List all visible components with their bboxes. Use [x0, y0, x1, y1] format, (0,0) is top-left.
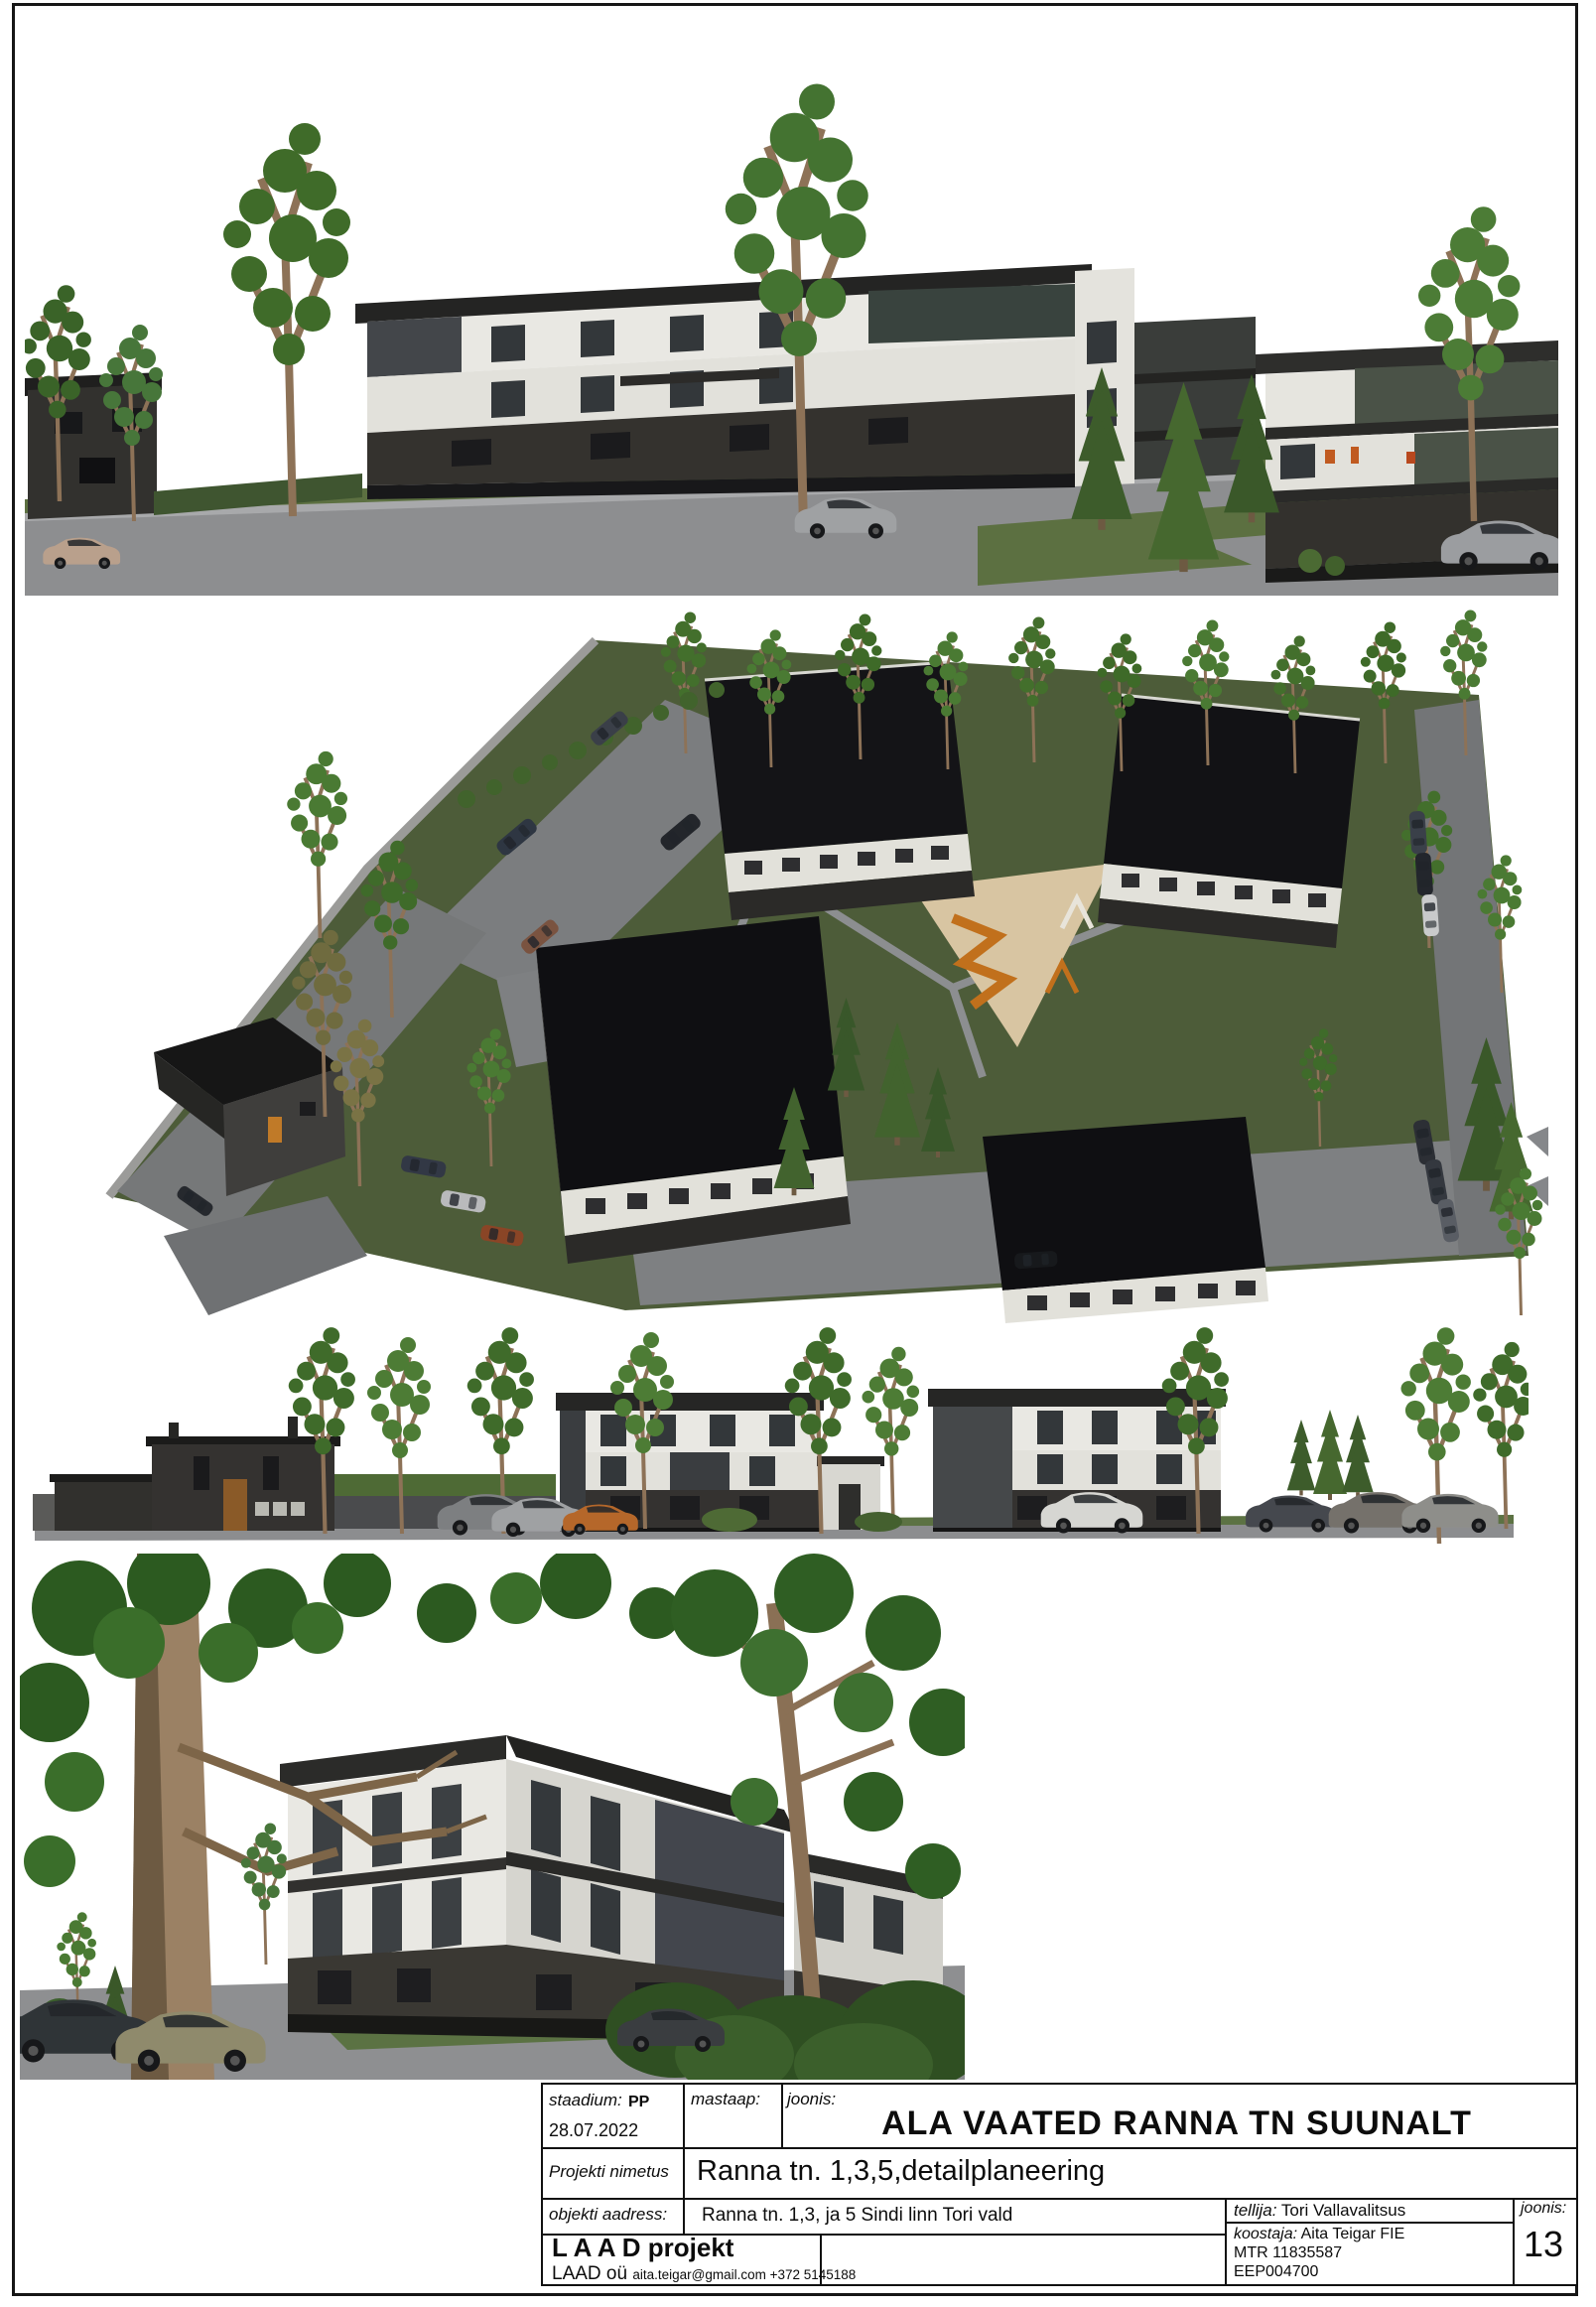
client-line: tellija: Tori Vallavalitsus: [1234, 2201, 1405, 2221]
date-value: 28.07.2022: [549, 2120, 638, 2141]
title-block: staadium: PP 28.07.2022 mastaap: joonis:…: [541, 2083, 1578, 2286]
building-1: [705, 662, 975, 920]
company-name: L A A D projekt: [552, 2233, 733, 2263]
divider: [683, 2085, 685, 2236]
address-value: Ranna tn. 1,3, ja 5 Sindi linn Tori vald: [702, 2205, 1012, 2227]
building-3: [536, 916, 851, 1264]
staadium-label: staadium:: [549, 2091, 622, 2110]
mtr-line: MTR 11835587: [1234, 2244, 1342, 2262]
mastaap-label: mastaap:: [691, 2090, 760, 2109]
staadium-value: PP: [628, 2094, 649, 2111]
view-aerial-site: [69, 601, 1548, 1325]
divider: [1225, 2198, 1227, 2284]
project-label: Projekti nimetus: [549, 2162, 669, 2182]
address-label: objekti aadress:: [549, 2205, 667, 2225]
divider: [1225, 2222, 1515, 2224]
building-2: [1098, 695, 1360, 948]
view-street-perspective: [25, 25, 1558, 596]
client-label: tellija:: [1234, 2201, 1276, 2220]
view-street-elevation: [15, 1325, 1529, 1544]
company-line: LAAD oü aita.teigar@gmail.com +372 51451…: [552, 2263, 856, 2285]
hedge: [334, 1474, 556, 1496]
reg-line: EEP004700: [1234, 2263, 1318, 2281]
view-corner-perspective: [20, 1554, 965, 2080]
drawing-title: ALA VAATED RANNA TN SUUNALT: [781, 2104, 1572, 2143]
drawing-sheet: staadium: PP 28.07.2022 mastaap: joonis:…: [0, 0, 1596, 2307]
project-name: Ranna tn. 1,3,5,detailplaneering: [697, 2155, 1105, 2188]
author-value: Aita Teigar FIE: [1301, 2226, 1405, 2242]
sheet-label: joonis:: [1521, 2200, 1566, 2218]
company-short: LAAD oü: [552, 2263, 627, 2284]
company-contact: aita.teigar@gmail.com +372 5145188: [632, 2267, 856, 2282]
author-line: koostaja: Aita Teigar FIE: [1234, 2226, 1404, 2243]
author-label: koostaja:: [1234, 2226, 1297, 2242]
client-value: Tori Vallavalitsus: [1281, 2201, 1405, 2220]
divider: [543, 2198, 1576, 2200]
building-4: [983, 1117, 1268, 1323]
sheet-number: 13: [1513, 2224, 1574, 2265]
divider: [543, 2147, 1576, 2149]
